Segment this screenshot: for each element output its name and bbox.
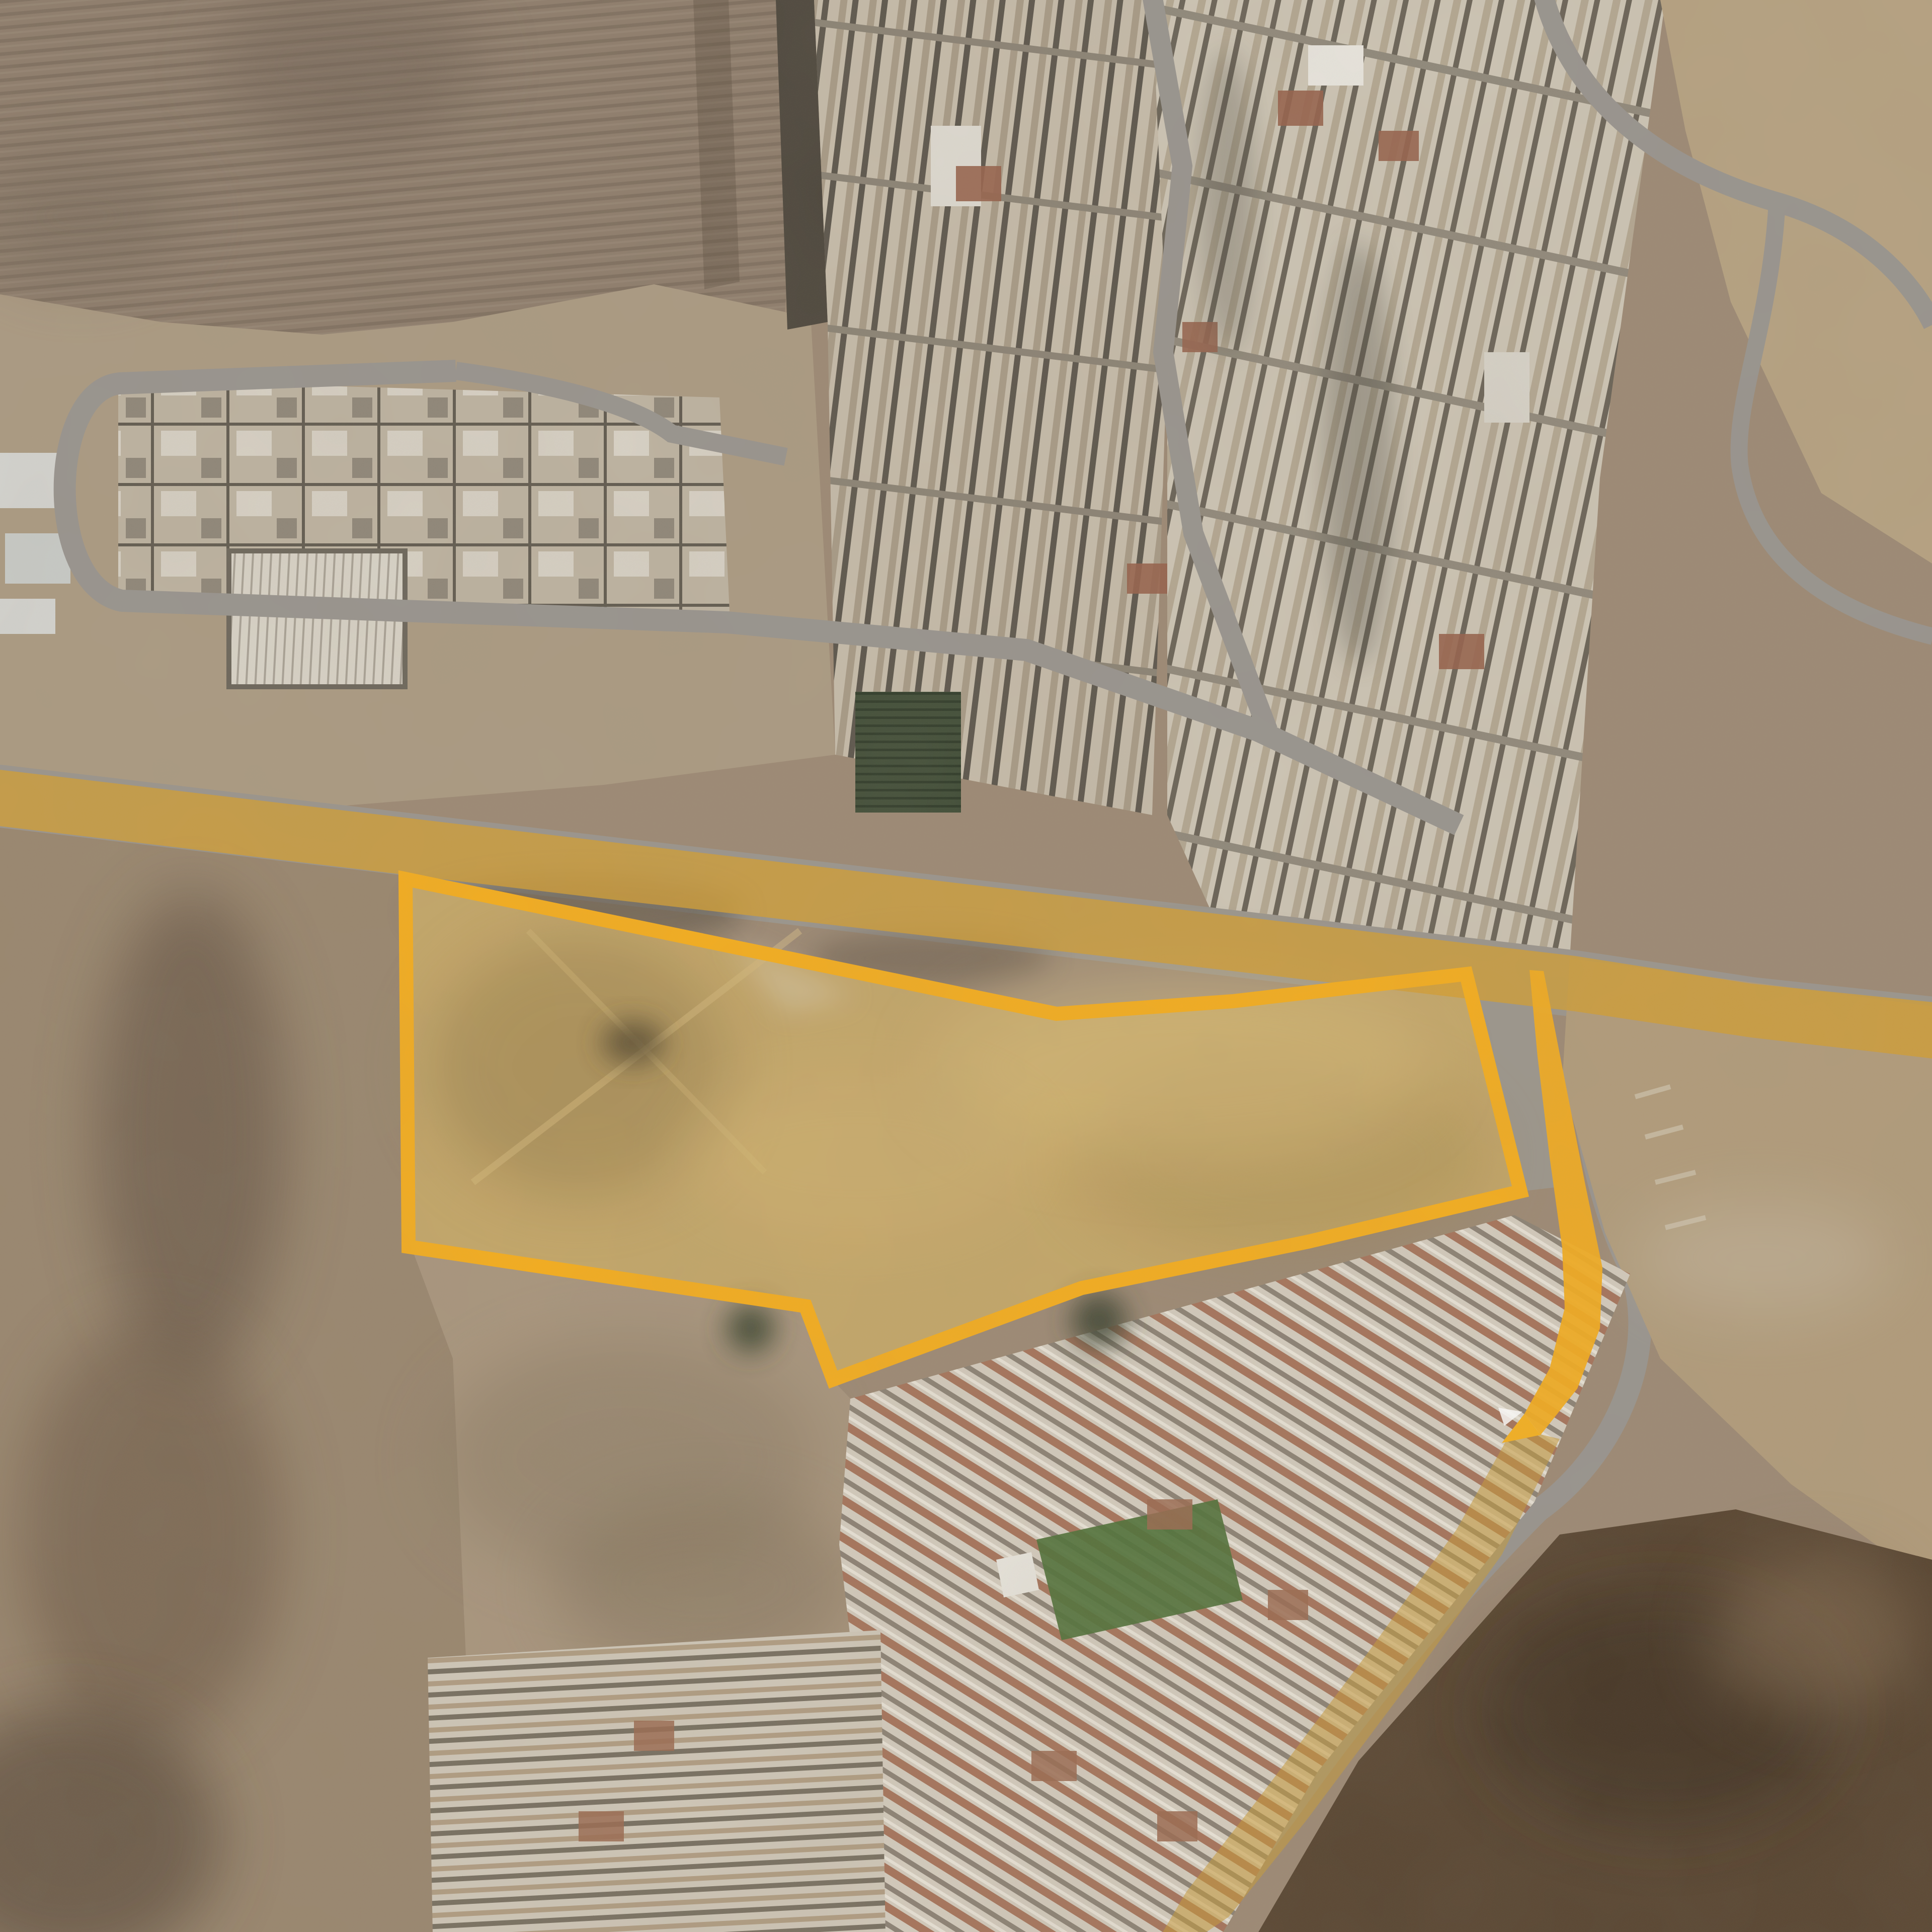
satellite-scene [0,0,1932,1932]
layer-atmosphere [0,0,1932,1932]
fine-grain-overlay [0,0,1932,1932]
